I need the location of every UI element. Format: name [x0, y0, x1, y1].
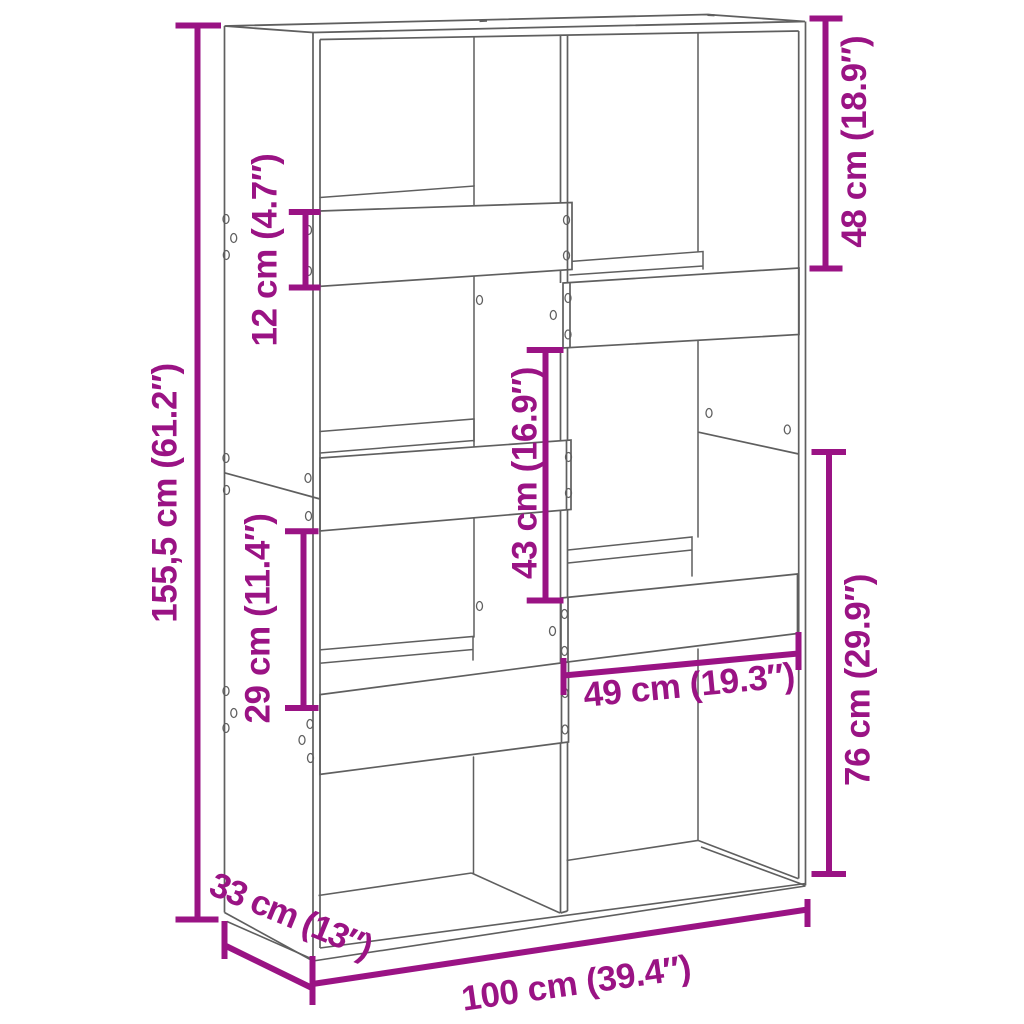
svg-text:12 cm (4.7″): 12 cm (4.7″): [245, 154, 284, 347]
svg-text:76 cm (29.9″): 76 cm (29.9″): [838, 574, 877, 786]
svg-text:155,5 cm (61.2″): 155,5 cm (61.2″): [145, 363, 184, 622]
svg-text:29 cm (11.4″): 29 cm (11.4″): [238, 513, 277, 723]
svg-text:48 cm (18.9″): 48 cm (18.9″): [835, 36, 874, 248]
svg-text:43 cm (16.9″): 43 cm (16.9″): [505, 367, 544, 579]
